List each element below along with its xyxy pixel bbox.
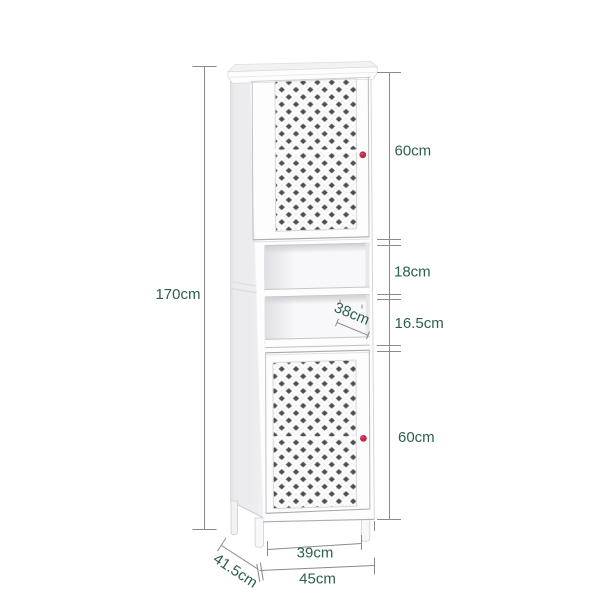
svg-text:60cm: 60cm <box>395 142 432 159</box>
svg-text:60cm: 60cm <box>398 429 435 446</box>
svg-text:39cm: 39cm <box>297 545 334 562</box>
svg-text:16.5cm: 16.5cm <box>395 315 444 332</box>
svg-text:170cm: 170cm <box>155 286 200 303</box>
svg-text:18cm: 18cm <box>394 263 431 280</box>
svg-text:45cm: 45cm <box>299 570 336 587</box>
